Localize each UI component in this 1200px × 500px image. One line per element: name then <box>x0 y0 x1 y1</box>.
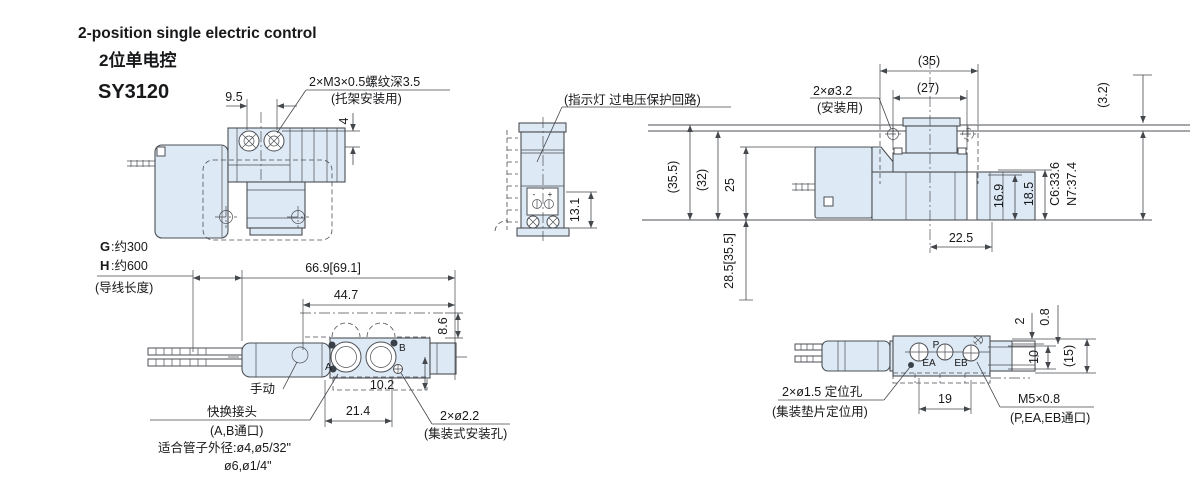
coil-body <box>242 343 330 377</box>
manifold-hole-2-2 <box>393 364 403 374</box>
model-number: SY3120 <box>98 81 169 103</box>
svg-text:(3.2): (3.2) <box>1096 82 1110 108</box>
mount-hole-right <box>960 126 976 142</box>
lead-wires <box>148 348 242 366</box>
title-block: 2-position single electric control 2位单电控… <box>78 25 317 103</box>
svg-text:(指示灯 过电压保护回路): (指示灯 过电压保护回路) <box>564 92 701 107</box>
svg-text:(托架安装用): (托架安装用) <box>331 91 402 106</box>
svg-text:9.5: 9.5 <box>225 90 242 104</box>
svg-text:C6:33.6: C6:33.6 <box>1048 162 1062 206</box>
svg-text:19: 19 <box>938 392 952 406</box>
svg-text:快换接头: 快换接头 <box>207 404 257 419</box>
svg-text::约300: :约300 <box>111 239 148 254</box>
svg-text:10: 10 <box>1027 350 1041 364</box>
svg-text:M5×0.8: M5×0.8 <box>1018 392 1060 406</box>
svg-text:(35): (35) <box>918 54 940 68</box>
svg-text:2×M3×0.5螺纹深3.5: 2×M3×0.5螺纹深3.5 <box>309 75 420 89</box>
dim-2: 2 <box>1013 313 1032 339</box>
svg-text:2: 2 <box>1013 317 1027 324</box>
svg-text:13.1: 13.1 <box>568 198 582 222</box>
svg-text:10.2: 10.2 <box>370 378 394 392</box>
svg-text:(32): (32) <box>695 169 709 191</box>
locating-pin-hole <box>908 362 914 368</box>
svg-text:44.7: 44.7 <box>334 288 358 302</box>
bracket-screw-left <box>239 131 259 151</box>
solenoid-body <box>155 145 228 238</box>
svg-text:2×ø2.2: 2×ø2.2 <box>440 409 479 423</box>
sy3120-dimension-drawing: 2-position single electric control 2位单电控… <box>0 0 1200 500</box>
svg-text:25: 25 <box>723 178 737 192</box>
view-bottom-ports-ab: A B 66.9[69.1] 44.7 8.6 10.2 21.4 手动 快换接… <box>148 261 510 473</box>
svg-text::约600: :约600 <box>111 258 148 273</box>
svg-text:66.9[69.1]: 66.9[69.1] <box>305 261 361 275</box>
svg-text:适合管子外径:ø4,ø5/32": 适合管子外径:ø4,ø5/32" <box>158 440 291 455</box>
lead-wires-2 <box>795 344 822 362</box>
svg-text:H: H <box>100 258 109 273</box>
svg-text:ø6,ø1/4": ø6,ø1/4" <box>224 459 272 473</box>
svg-text:(A,B通口): (A,B通口) <box>210 424 263 438</box>
dim-3-2: (3.2) <box>1096 75 1152 123</box>
view-side-panel-mount: (35) (27) 2×ø3.2 (安装用) (3.2) C6:33.6 N7:… <box>642 54 1190 300</box>
svg-text:(15): (15) <box>1062 345 1076 367</box>
svg-text:22.5: 22.5 <box>949 231 973 245</box>
dim-height-c6-n7: C6:33.6 N7:37.4 <box>1048 131 1143 220</box>
dim-9-5: 9.5 <box>225 90 297 130</box>
svg-text:(集装垫片定位用): (集装垫片定位用) <box>772 404 868 419</box>
solenoid-side <box>792 147 872 218</box>
bracket-section-dashed <box>495 130 518 231</box>
svg-text:N7:37.4: N7:37.4 <box>1065 162 1079 206</box>
svg-text:G: G <box>100 239 110 254</box>
svg-text:(35.5): (35.5) <box>666 161 680 194</box>
port-b-label: B <box>399 343 406 354</box>
svg-text:(P,EA,EB通口): (P,EA,EB通口) <box>1010 411 1090 425</box>
svg-text:-: - <box>533 190 536 199</box>
svg-text:2×ø3.2: 2×ø3.2 <box>813 84 852 98</box>
svg-text:0.8: 0.8 <box>1038 308 1052 325</box>
svg-text:(导线长度): (导线长度) <box>95 280 153 295</box>
sub-plate <box>247 182 305 228</box>
callout-m3-thread: 2×M3×0.5螺纹深3.5 (托架安装用) <box>277 75 450 133</box>
solenoid-tab <box>157 147 165 156</box>
callout-fitting: 快换接头 (A,B通口) 适合管子外径:ø4,ø5/32" ø6,ø1/4" <box>150 374 338 473</box>
dim-32: (32) <box>695 131 718 220</box>
view-side-with-bracket: 9.5 2×M3×0.5螺纹深3.5 (托架安装用) 4 <box>127 75 450 240</box>
pin-terminal <box>127 160 155 167</box>
title-english: 2-position single electric control <box>78 25 317 42</box>
fitting-port-b <box>366 342 396 372</box>
technical-drawing-page: 2-position single electric control 2位单电控… <box>0 0 1200 500</box>
port-p-hole <box>937 344 953 360</box>
dim-22-5: 22.5 <box>930 222 992 252</box>
lead-wire-note: G :约300 H :约600 (导线长度) <box>95 239 193 295</box>
svg-text:4: 4 <box>337 117 351 124</box>
dim-28-5: 28.5[35.5] <box>722 220 753 300</box>
callout-locating-pin: 2×ø1.5 定位孔 (集装垫片定位用) <box>772 367 910 419</box>
svg-text:手动: 手动 <box>250 382 275 396</box>
callout-hole-2-2: 2×ø2.2 (集装式安装孔) <box>401 373 510 441</box>
port-p-label: P <box>933 340 940 351</box>
end-block <box>430 343 456 374</box>
callout-mount-hole: 2×ø3.2 (安装用) <box>810 84 891 129</box>
bracket-screw-right <box>264 131 284 151</box>
dim-0-8: 0.8 <box>1038 305 1058 344</box>
electrical-connector: - + <box>527 188 558 215</box>
svg-text:+: + <box>548 190 553 199</box>
title-chinese: 2位单电控 <box>99 50 176 70</box>
tube-clearance-dashed <box>305 323 430 337</box>
valve-top-cap <box>519 123 566 132</box>
dim-35-5: (35.5) <box>666 125 690 220</box>
svg-text:(集装式安装孔): (集装式安装孔) <box>424 426 507 441</box>
svg-text:18.5: 18.5 <box>1022 182 1036 206</box>
view-front-narrow: - + (指示灯 过电压保护回路) 13.1 <box>495 92 731 241</box>
valve-body-side <box>872 172 1035 220</box>
dim-15: (15) <box>1062 339 1087 373</box>
dim-25: 25 <box>723 147 817 220</box>
svg-text:28.5[35.5]: 28.5[35.5] <box>722 233 736 289</box>
svg-text:(安装用): (安装用) <box>817 100 863 115</box>
svg-text:8.6: 8.6 <box>436 317 450 334</box>
port-ea-label: EA <box>922 358 936 369</box>
svg-text:(27): (27) <box>917 81 939 95</box>
coil-body-2 <box>822 341 890 371</box>
dim-8-6: 8.6 <box>436 313 463 338</box>
dim-13-1: 13.1 <box>566 192 597 228</box>
svg-text:16.9: 16.9 <box>992 184 1006 208</box>
svg-text:21.4: 21.4 <box>346 404 370 418</box>
svg-text:2×ø1.5 定位孔: 2×ø1.5 定位孔 <box>782 384 863 399</box>
port-a-label: A <box>325 362 332 373</box>
view-bottom-ports-p-ea-eb: P EA EB 2 0.8 10 (15) 19 2×ø1.5 定位孔 (集装垫… <box>772 305 1096 425</box>
port-eb-label: EB <box>954 358 968 369</box>
